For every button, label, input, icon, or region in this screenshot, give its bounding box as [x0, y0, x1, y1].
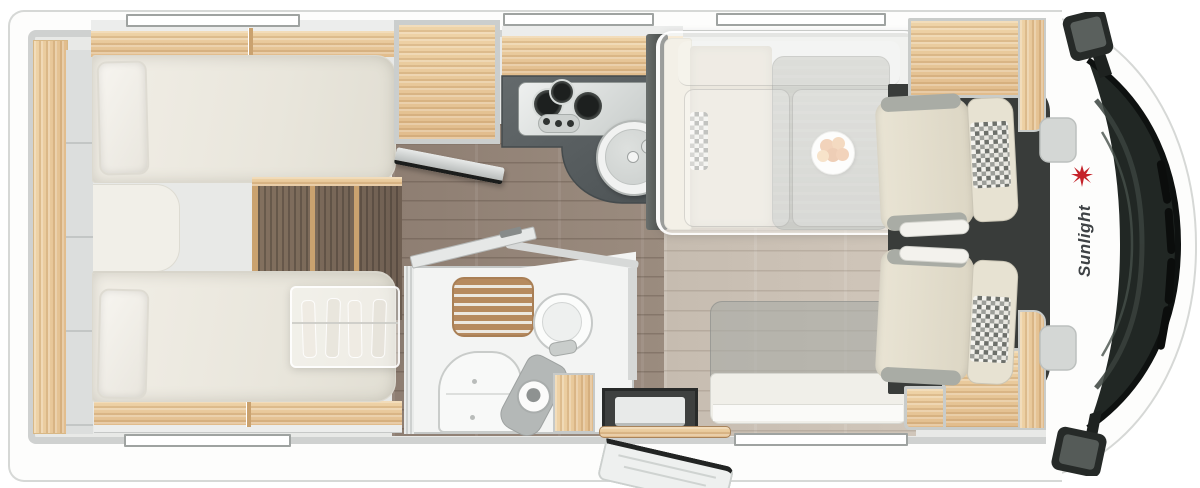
dropbed-mattress-left	[684, 89, 790, 227]
seat-bolster	[880, 367, 961, 386]
locker-front	[91, 31, 403, 57]
bathroom-cabinet	[553, 373, 595, 433]
drain	[472, 379, 477, 384]
sofa-front-panel	[713, 404, 903, 421]
locker-divider	[248, 28, 253, 57]
entry-step	[615, 397, 685, 426]
wardrobe-underbed	[290, 286, 400, 368]
rear-cabinet	[66, 50, 93, 434]
hood-hatch-top	[1040, 118, 1076, 162]
clothes-item	[301, 300, 317, 358]
overhead-locker-bottom	[94, 401, 402, 432]
sink-lid-knob	[627, 151, 639, 163]
hob-knob	[555, 120, 562, 127]
bed-corner-step	[93, 184, 180, 272]
seat-cushion	[875, 97, 976, 232]
cab-front-detail	[1036, 12, 1196, 476]
cab-seat-passenger	[872, 242, 1019, 389]
kitchen-tall-cabinet	[394, 20, 500, 144]
motorhome-floorplan: Sunlight	[0, 0, 1200, 488]
mid-step-edge	[252, 177, 402, 186]
locker-divider	[246, 401, 251, 427]
wardrobe-rail	[292, 322, 398, 324]
bathroom-wall-left	[404, 266, 414, 434]
clothes-item	[325, 298, 341, 358]
drain	[470, 415, 475, 420]
side-mirror-top	[1061, 12, 1115, 78]
seat-checker-cushion	[970, 121, 1011, 189]
shower-slat-mat	[452, 277, 534, 337]
entry-threshold	[599, 426, 731, 438]
window-dinette-top	[716, 13, 886, 26]
seat-cushion	[875, 249, 976, 384]
hob-knob	[543, 118, 550, 125]
cab-locker-bottom-left	[904, 386, 946, 430]
window-kitchen	[503, 13, 654, 26]
washbasin-bowl	[542, 302, 582, 342]
pillow-bottom-bed	[97, 288, 150, 399]
window-rear-bottom	[124, 434, 291, 447]
burner-top	[551, 81, 573, 103]
side-mirror-bottom	[1050, 410, 1108, 476]
cab-seat-driver	[872, 90, 1019, 237]
hob-knob	[567, 120, 574, 127]
window-rear-top	[126, 14, 300, 27]
pillow-top-bed	[97, 60, 150, 175]
rear-shelf	[33, 40, 68, 434]
hood-hatch-bottom	[1040, 326, 1076, 370]
burner-right	[574, 92, 602, 120]
tray-seam	[446, 393, 516, 395]
window-dinette-bottom	[734, 433, 908, 446]
dropbed-head-band	[678, 41, 900, 86]
clothes-item	[347, 300, 362, 358]
clothes-item	[371, 299, 387, 358]
seat-checker-cushion	[970, 295, 1011, 363]
bathroom-wall-right	[628, 268, 637, 380]
door-ridge	[624, 466, 706, 487]
brand-logo-text: Sunlight	[1075, 179, 1097, 303]
